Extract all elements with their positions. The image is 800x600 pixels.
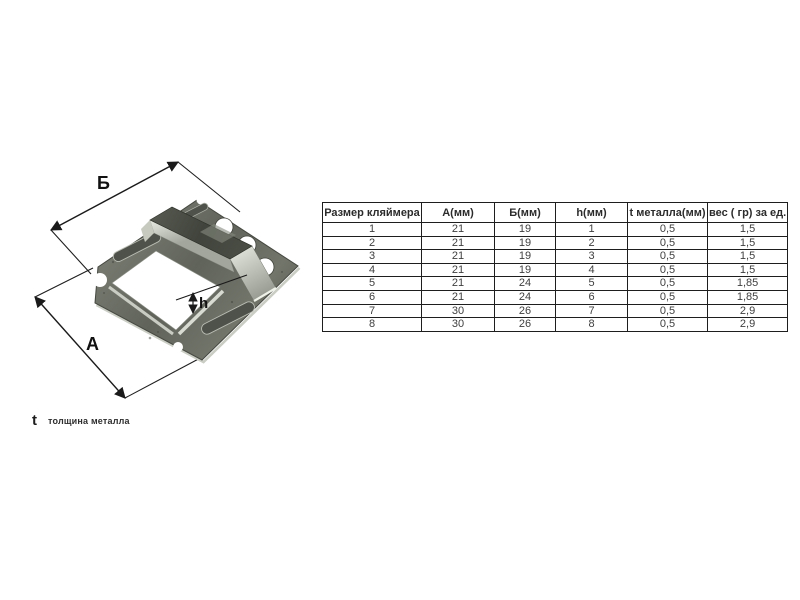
table-cell: 19 <box>495 250 556 264</box>
extension-line <box>125 355 206 398</box>
table-cell: 0,5 <box>628 263 708 277</box>
table-cell: 4 <box>556 263 628 277</box>
extension-line <box>51 230 91 274</box>
table-cell: 19 <box>495 236 556 250</box>
table-cell: 24 <box>495 290 556 304</box>
table-cell: 2,9 <box>708 304 788 318</box>
extension-line <box>178 162 240 212</box>
thickness-text: толщина металла <box>48 416 130 426</box>
table-cell: 0,5 <box>628 236 708 250</box>
table-cell: 0,5 <box>628 304 708 318</box>
table-cell: 3 <box>556 250 628 264</box>
table-row: 6212460,51,85 <box>323 290 788 304</box>
column-header: Б(мм) <box>495 203 556 223</box>
table-cell: 8 <box>556 318 628 332</box>
table-cell: 3 <box>323 250 422 264</box>
column-header: t металла(мм) <box>628 203 708 223</box>
table-cell: 19 <box>495 223 556 237</box>
table-cell: 1,85 <box>708 277 788 291</box>
dim-b-label: Б <box>97 173 110 193</box>
table-cell: 7 <box>556 304 628 318</box>
table-cell: 2 <box>323 236 422 250</box>
column-header: вес ( гр) за ед. <box>708 203 788 223</box>
table-cell: 21 <box>422 263 495 277</box>
table-cell: 0,5 <box>628 250 708 264</box>
spec-table-body: 1211910,51,52211920,51,53211930,51,54211… <box>323 223 788 332</box>
table-cell: 30 <box>422 304 495 318</box>
header-row: Размер кляймераА(мм)Б(мм)h(мм)t металла(… <box>323 203 788 223</box>
table-cell: 7 <box>323 304 422 318</box>
table-cell: 19 <box>495 263 556 277</box>
table-cell: 5 <box>323 277 422 291</box>
table-row: 2211920,51,5 <box>323 236 788 250</box>
table-cell: 6 <box>323 290 422 304</box>
dim-a-label: А <box>86 334 99 354</box>
table-cell: 21 <box>422 277 495 291</box>
table-cell: 0,5 <box>628 290 708 304</box>
table-cell: 1,5 <box>708 263 788 277</box>
table-cell: 6 <box>556 290 628 304</box>
table-cell: 1 <box>323 223 422 237</box>
table-cell: 21 <box>422 223 495 237</box>
table-cell: 0,5 <box>628 277 708 291</box>
table-row: 1211910,51,5 <box>323 223 788 237</box>
table-cell: 5 <box>556 277 628 291</box>
table-cell: 30 <box>422 318 495 332</box>
clamp-figure: Б А h <box>0 140 320 415</box>
extension-line <box>35 268 93 297</box>
table-cell: 21 <box>422 250 495 264</box>
clamp-photo: Б А h <box>0 140 320 415</box>
table-cell: 0,5 <box>628 223 708 237</box>
table-row: 4211940,51,5 <box>323 263 788 277</box>
table-row: 5212450,51,85 <box>323 277 788 291</box>
table-cell: 1,5 <box>708 223 788 237</box>
column-header: А(мм) <box>422 203 495 223</box>
table-cell: 26 <box>495 318 556 332</box>
table-cell: 1,5 <box>708 250 788 264</box>
table-cell: 1,5 <box>708 236 788 250</box>
table-cell: 1 <box>556 223 628 237</box>
thickness-symbol: t <box>32 413 37 428</box>
table-cell: 2 <box>556 236 628 250</box>
table-cell: 21 <box>422 236 495 250</box>
table-cell: 26 <box>495 304 556 318</box>
table-cell: 0,5 <box>628 318 708 332</box>
table-cell: 4 <box>323 263 422 277</box>
dim-h-label: h <box>199 295 208 312</box>
table-row: 3211930,51,5 <box>323 250 788 264</box>
corner-notch <box>173 342 183 352</box>
thickness-note: t толщина металла <box>32 413 130 428</box>
table-cell: 1,85 <box>708 290 788 304</box>
table-cell: 8 <box>323 318 422 332</box>
table-row: 8302680,52,9 <box>323 318 788 332</box>
corner-notch <box>286 292 298 304</box>
table-cell: 2,9 <box>708 318 788 332</box>
column-header: h(мм) <box>556 203 628 223</box>
table-cell: 21 <box>422 290 495 304</box>
table-row: 7302670,52,9 <box>323 304 788 318</box>
table-cell: 24 <box>495 277 556 291</box>
spec-table: Размер кляймераА(мм)Б(мм)h(мм)t металла(… <box>322 202 788 332</box>
column-header: Размер кляймера <box>323 203 422 223</box>
corner-notch <box>93 273 107 287</box>
